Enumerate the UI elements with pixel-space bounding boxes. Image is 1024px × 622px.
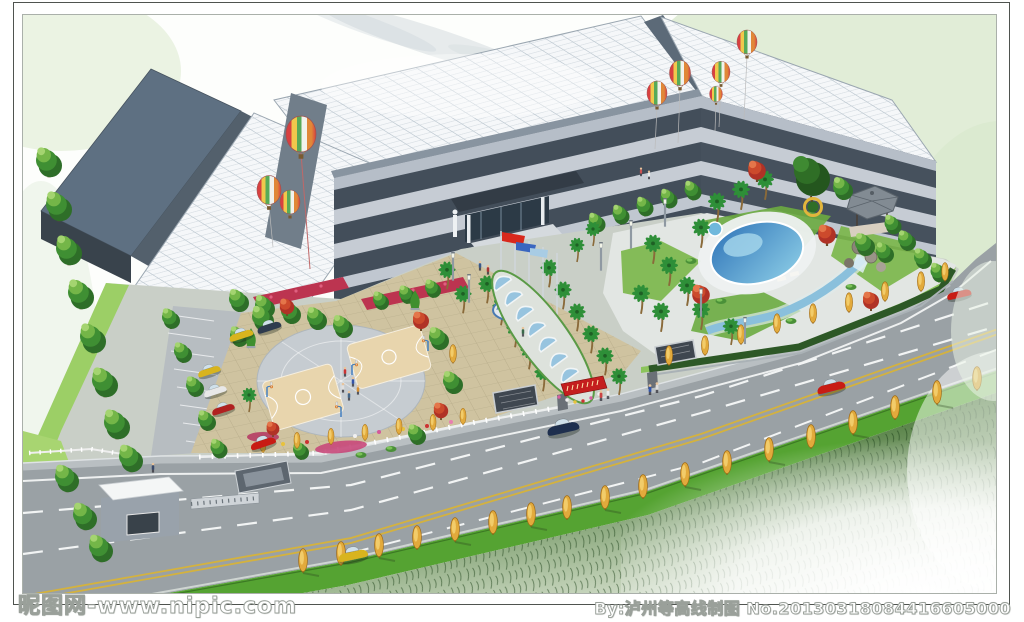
stock-image-page: 昵图网-www.nipic.com By:泸州等高线制图 No.20130318… [0, 0, 1024, 622]
haze [321, 54, 601, 118]
watermark-site: 昵图网-www.nipic.com [18, 588, 297, 620]
spa-pool [708, 222, 722, 236]
watermark-credit: By:泸州等高线制图 No.20130318084416605000 [594, 595, 1011, 619]
architectural-rendering [22, 14, 997, 594]
statue [453, 215, 457, 237]
